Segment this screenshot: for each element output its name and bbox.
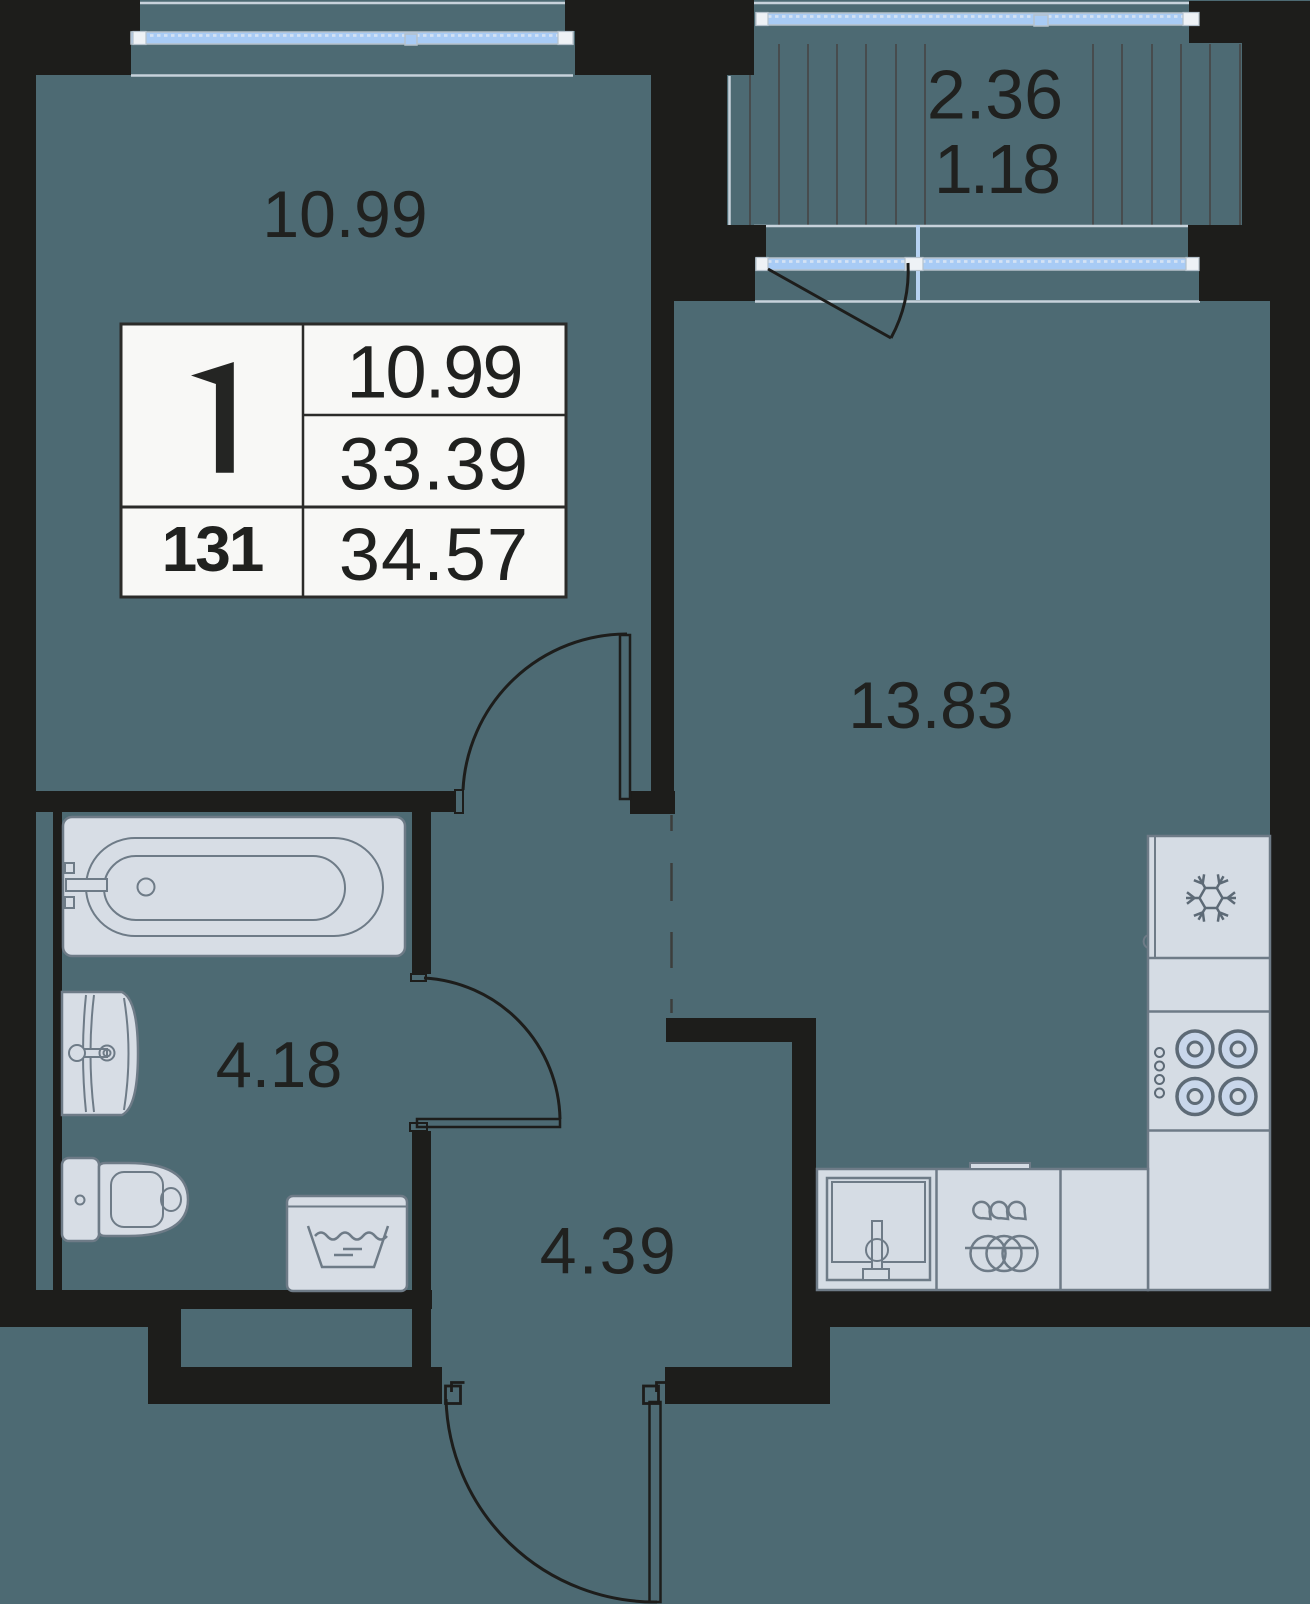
svg-text:10.99: 10.99 <box>262 177 427 251</box>
svg-text:131: 131 <box>162 513 263 585</box>
svg-text:33.39: 33.39 <box>339 423 529 506</box>
svg-text:4.18: 4.18 <box>216 1028 343 1101</box>
svg-text:1.18: 1.18 <box>934 130 1058 208</box>
svg-text:2.36: 2.36 <box>927 56 1063 134</box>
svg-text:34.57: 34.57 <box>339 513 529 596</box>
svg-text:4.39: 4.39 <box>540 1214 678 1288</box>
svg-text:10.99: 10.99 <box>346 331 521 414</box>
svg-text:13.83: 13.83 <box>848 668 1013 742</box>
